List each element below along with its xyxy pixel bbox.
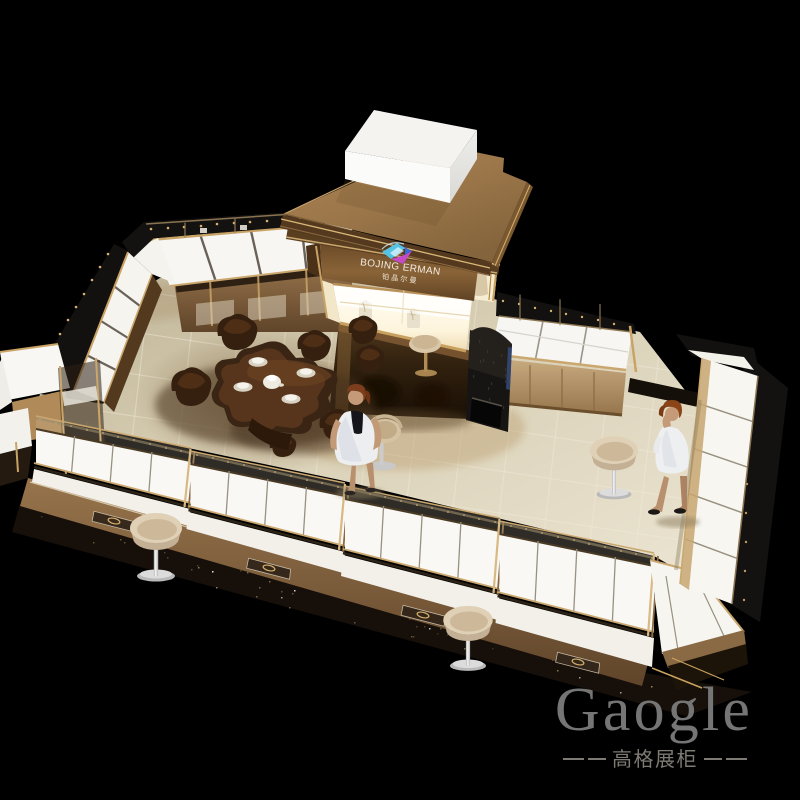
svg-text:Gaogle: Gaogle — [555, 676, 753, 744]
svg-text:高格展柜: 高格展柜 — [612, 748, 698, 771]
